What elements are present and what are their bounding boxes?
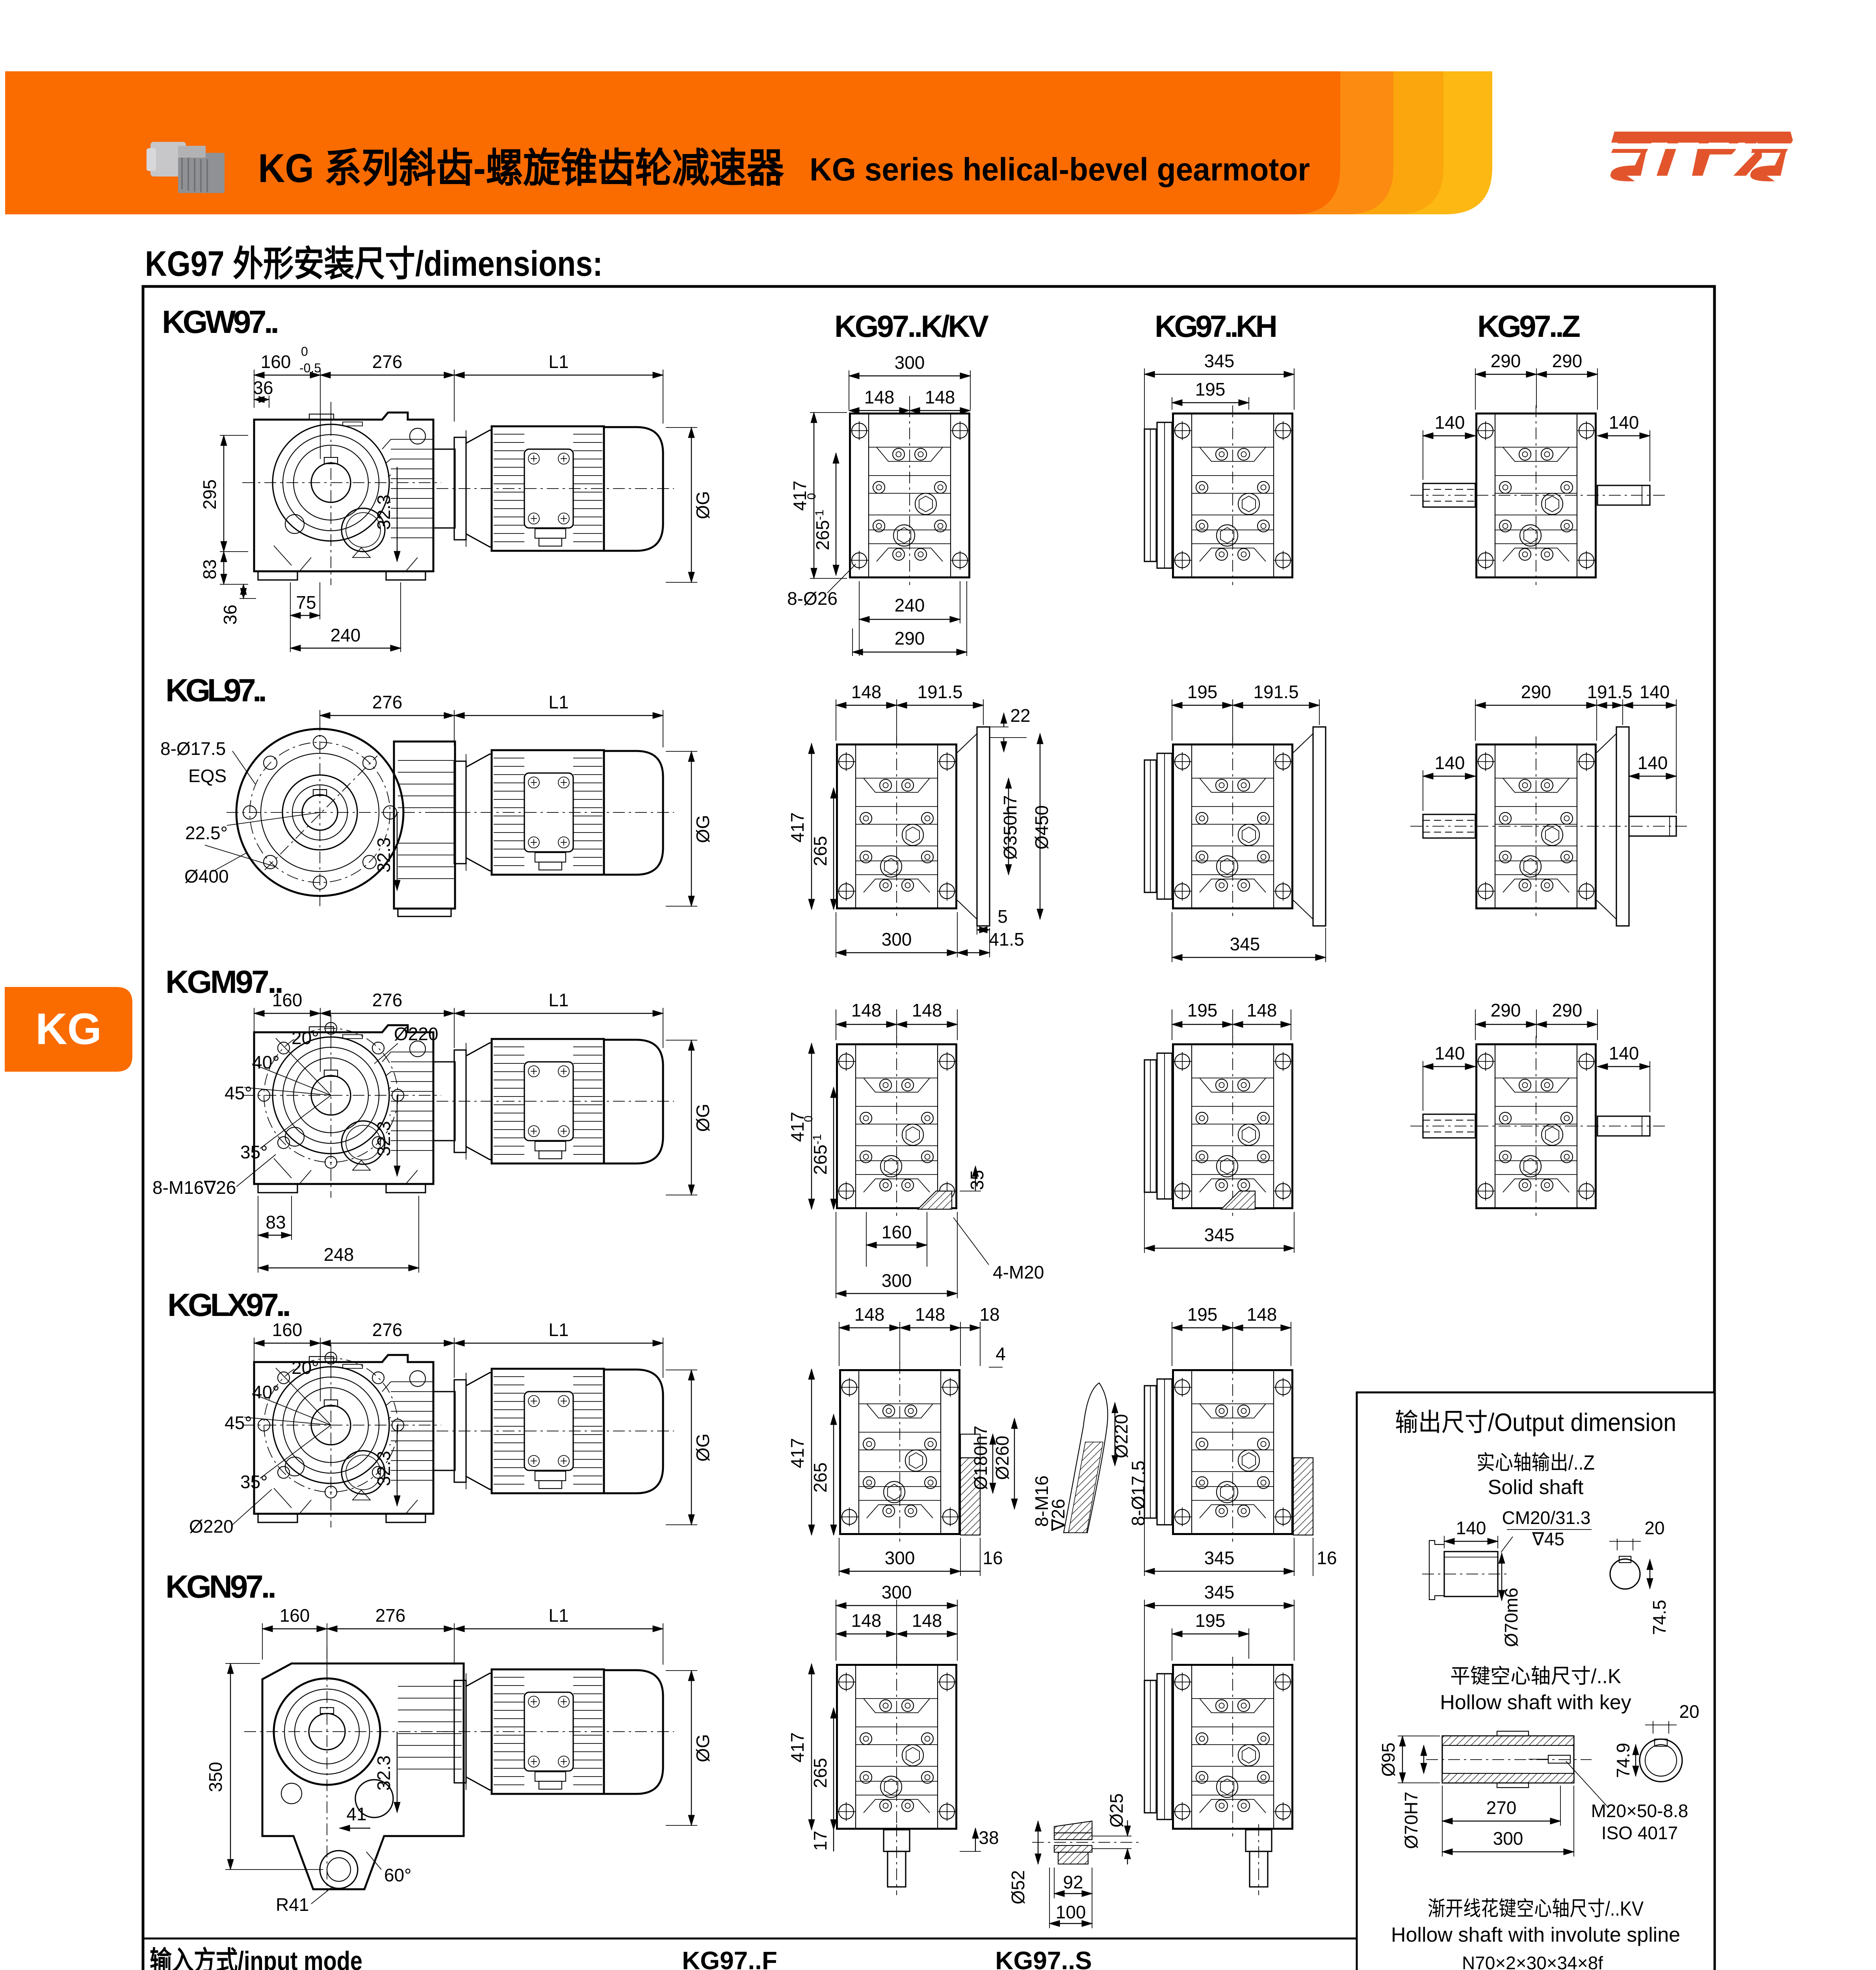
svg-text:140: 140 <box>1638 753 1668 773</box>
svg-text:4-M20: 4-M20 <box>993 1262 1044 1282</box>
svg-text:345: 345 <box>1204 1548 1235 1568</box>
svg-text:148: 148 <box>1247 1304 1277 1325</box>
svg-text:191.5: 191.5 <box>917 682 962 702</box>
svg-text:ØG: ØG <box>693 815 713 843</box>
svg-text:L1: L1 <box>548 1320 568 1340</box>
svg-text:140: 140 <box>1640 682 1670 702</box>
svg-text:KGW97..: KGW97.. <box>162 304 279 340</box>
svg-text:∇45: ∇45 <box>1532 1529 1564 1549</box>
svg-text:35°: 35° <box>240 1472 268 1492</box>
svg-text:Hollow shaft with involute spl: Hollow shaft with involute spline <box>1391 1924 1680 1946</box>
svg-text:36: 36 <box>220 604 240 624</box>
svg-text:KG series helical-bevel gearmo: KG series helical-bevel gearmotor <box>810 152 1310 188</box>
svg-text:16: 16 <box>1317 1548 1337 1568</box>
svg-text:输入方式/input mode: 输入方式/input mode <box>150 1946 362 1970</box>
svg-text:300: 300 <box>882 1270 912 1291</box>
svg-text:276: 276 <box>375 1605 406 1626</box>
svg-text:4: 4 <box>996 1344 1006 1364</box>
svg-text:8-M16∇26: 8-M16∇26 <box>152 1177 236 1198</box>
svg-text:Ø70m6: Ø70m6 <box>1501 1588 1521 1647</box>
svg-text:N70×2×30×34×8f: N70×2×30×34×8f <box>1462 1953 1603 1970</box>
svg-text:276: 276 <box>372 990 403 1010</box>
svg-text:195: 195 <box>1187 1000 1218 1020</box>
svg-text:290: 290 <box>1552 1000 1583 1020</box>
svg-text:35: 35 <box>967 1170 987 1190</box>
svg-text:Ø52: Ø52 <box>1008 1870 1028 1905</box>
svg-text:KGM97..: KGM97.. <box>165 964 284 1000</box>
svg-text:300: 300 <box>885 1548 915 1568</box>
svg-text:KG97..S: KG97..S <box>995 1946 1092 1970</box>
svg-text:148: 148 <box>851 1610 882 1631</box>
svg-text:Ø260: Ø260 <box>992 1436 1012 1480</box>
svg-text:32.3: 32.3 <box>373 837 394 873</box>
svg-text:290: 290 <box>895 628 925 649</box>
svg-text:KGN97..: KGN97.. <box>165 1569 277 1605</box>
svg-text:148: 148 <box>912 1000 942 1020</box>
svg-text:Ø350h7: Ø350h7 <box>1000 795 1020 860</box>
svg-text:KG 系列斜齿-螺旋锥齿轮减速器: KG 系列斜齿-螺旋锥齿轮减速器 <box>258 146 784 191</box>
svg-text:Ø220: Ø220 <box>1111 1414 1131 1459</box>
svg-text:92: 92 <box>1063 1872 1083 1892</box>
svg-text:160: 160 <box>272 1320 303 1340</box>
svg-text:276: 276 <box>372 1320 403 1340</box>
svg-text:Ø450: Ø450 <box>1031 805 1052 850</box>
svg-text:L1: L1 <box>548 692 568 712</box>
svg-text:300: 300 <box>895 352 925 373</box>
svg-text:L1: L1 <box>548 1605 568 1626</box>
svg-text:74.9: 74.9 <box>1613 1743 1633 1778</box>
svg-text:270: 270 <box>1486 1797 1517 1818</box>
svg-text:60°: 60° <box>384 1865 412 1885</box>
svg-text:L1: L1 <box>548 990 568 1010</box>
svg-text:KG: KG <box>35 1004 102 1054</box>
svg-text:41.5: 41.5 <box>989 929 1024 950</box>
svg-text:160: 160 <box>272 990 303 1010</box>
svg-text:ØG: ØG <box>693 1433 713 1462</box>
svg-text:265: 265 <box>810 1463 830 1493</box>
svg-text:-0.5: -0.5 <box>299 361 321 375</box>
svg-text:248: 248 <box>324 1244 354 1265</box>
svg-text:18: 18 <box>979 1304 999 1325</box>
svg-text:0: 0 <box>802 1115 815 1122</box>
svg-text:417: 417 <box>787 812 808 843</box>
svg-text:148: 148 <box>851 682 882 702</box>
svg-text:195: 195 <box>1195 1610 1226 1631</box>
svg-text:22: 22 <box>1010 705 1030 726</box>
svg-text:KG97..Z: KG97..Z <box>1477 309 1581 344</box>
svg-text:Ø95: Ø95 <box>1378 1743 1399 1777</box>
svg-text:20°: 20° <box>292 1028 319 1048</box>
svg-text:45°: 45° <box>225 1412 252 1433</box>
svg-text:300: 300 <box>882 1582 912 1602</box>
svg-text:Hollow shaft with key: Hollow shaft with key <box>1440 1691 1631 1714</box>
svg-text:100: 100 <box>1056 1902 1086 1922</box>
svg-text:R41: R41 <box>276 1894 309 1915</box>
svg-text:350: 350 <box>205 1762 226 1792</box>
svg-text:KG97..F: KG97..F <box>682 1946 777 1970</box>
svg-text:Ø220: Ø220 <box>189 1516 234 1537</box>
svg-text:417: 417 <box>787 1438 808 1468</box>
svg-text:20°: 20° <box>292 1357 319 1378</box>
svg-text:148: 148 <box>1247 1000 1277 1020</box>
svg-text:ISO 4017: ISO 4017 <box>1601 1823 1678 1843</box>
svg-text:CM20/31.3: CM20/31.3 <box>1502 1507 1590 1528</box>
svg-text:290: 290 <box>1552 351 1583 371</box>
svg-text:160: 160 <box>280 1605 310 1626</box>
svg-text:Ø70H7: Ø70H7 <box>1401 1792 1421 1849</box>
svg-text:8-Ø17.5: 8-Ø17.5 <box>160 738 226 759</box>
svg-text:41: 41 <box>346 1804 366 1824</box>
svg-text:276: 276 <box>372 692 403 712</box>
svg-text:KGL97..: KGL97.. <box>165 673 267 708</box>
svg-text:ØG: ØG <box>693 1104 713 1132</box>
svg-text:36: 36 <box>253 377 273 398</box>
svg-text:32.3: 32.3 <box>373 1451 394 1486</box>
svg-text:276: 276 <box>372 351 403 372</box>
svg-text:240: 240 <box>895 595 925 615</box>
svg-text:417: 417 <box>787 1732 808 1763</box>
svg-text:38: 38 <box>979 1827 999 1848</box>
svg-text:32.3: 32.3 <box>373 494 394 530</box>
svg-text:22.5°: 22.5° <box>185 823 228 843</box>
svg-text:渐开线花键空心轴尺寸/..KV: 渐开线花键空心轴尺寸/..KV <box>1428 1898 1644 1920</box>
svg-text:290: 290 <box>1491 351 1521 371</box>
svg-text:140: 140 <box>1435 1043 1465 1063</box>
svg-text:EQS: EQS <box>188 766 227 786</box>
svg-text:300: 300 <box>1493 1828 1523 1849</box>
svg-text:345: 345 <box>1204 351 1235 371</box>
svg-text:265: 265 <box>810 1758 830 1788</box>
svg-text:160: 160 <box>261 351 291 372</box>
svg-text:345: 345 <box>1204 1582 1235 1602</box>
svg-text:148: 148 <box>851 1000 882 1020</box>
svg-text:20: 20 <box>1679 1701 1699 1722</box>
svg-text:输出尺寸/Output dimension: 输出尺寸/Output dimension <box>1395 1408 1676 1437</box>
svg-text:Solid shaft: Solid shaft <box>1488 1476 1584 1499</box>
svg-text:17: 17 <box>810 1831 830 1851</box>
svg-text:0: 0 <box>805 493 818 500</box>
svg-text:8-Ø17.5: 8-Ø17.5 <box>1128 1461 1148 1526</box>
svg-text:32.3: 32.3 <box>373 1121 394 1156</box>
svg-text:345: 345 <box>1230 934 1260 954</box>
svg-text:35°: 35° <box>240 1142 268 1162</box>
svg-text:ØG: ØG <box>693 491 713 519</box>
svg-text:L1: L1 <box>548 351 568 372</box>
svg-text:148: 148 <box>854 1304 885 1325</box>
svg-text:140: 140 <box>1609 412 1639 433</box>
svg-text:Ø400: Ø400 <box>184 866 229 886</box>
svg-text:195: 195 <box>1187 1304 1218 1325</box>
svg-text:140: 140 <box>1435 412 1465 433</box>
svg-text:KG97..K/KV: KG97..K/KV <box>834 309 989 344</box>
svg-text:KG97 外形安装尺寸/dimensions:: KG97 外形安装尺寸/dimensions: <box>145 244 603 284</box>
svg-text:345: 345 <box>1204 1225 1235 1245</box>
svg-text:∇26: ∇26 <box>1048 1499 1068 1531</box>
svg-text:265: 265 <box>810 836 830 866</box>
svg-text:295: 295 <box>199 479 220 510</box>
svg-text:KG97..KH: KG97..KH <box>1155 309 1278 344</box>
svg-text:148: 148 <box>925 387 955 407</box>
svg-text:75: 75 <box>296 592 316 613</box>
svg-text:148: 148 <box>915 1304 945 1325</box>
svg-text:140: 140 <box>1456 1518 1486 1538</box>
svg-text:M20×50-8.8: M20×50-8.8 <box>1591 1801 1688 1821</box>
svg-text:实心轴输出/..Z: 实心轴输出/..Z <box>1477 1451 1595 1474</box>
svg-text:148: 148 <box>864 387 895 407</box>
svg-text:160: 160 <box>882 1222 912 1242</box>
svg-text:32.3: 32.3 <box>373 1755 394 1791</box>
svg-text:8-Ø26: 8-Ø26 <box>787 588 838 609</box>
svg-text:0: 0 <box>301 344 308 359</box>
svg-text:74.5: 74.5 <box>1649 1600 1670 1635</box>
svg-text:148: 148 <box>912 1610 942 1631</box>
svg-text:191.5: 191.5 <box>1253 682 1298 702</box>
svg-text:290: 290 <box>1491 1000 1521 1020</box>
svg-text:16: 16 <box>983 1548 1003 1568</box>
svg-text:20: 20 <box>1644 1518 1664 1538</box>
svg-text:195: 195 <box>1187 682 1218 702</box>
svg-text:Ø220: Ø220 <box>394 1024 438 1044</box>
svg-text:5: 5 <box>997 906 1008 927</box>
svg-text:140: 140 <box>1435 753 1465 773</box>
svg-text:KGLX97..: KGLX97.. <box>167 1287 291 1323</box>
svg-text:45°: 45° <box>225 1083 252 1103</box>
svg-text:83: 83 <box>199 559 220 579</box>
svg-text:83: 83 <box>266 1212 286 1232</box>
svg-text:240: 240 <box>331 625 361 645</box>
svg-text:140: 140 <box>1609 1043 1639 1063</box>
svg-text:195: 195 <box>1195 379 1226 400</box>
svg-text:191.5: 191.5 <box>1587 682 1632 702</box>
svg-text:平键空心轴尺寸/..K: 平键空心轴尺寸/..K <box>1450 1665 1621 1688</box>
svg-text:Ø25: Ø25 <box>1106 1793 1127 1828</box>
svg-text:Ø180h7: Ø180h7 <box>970 1425 991 1490</box>
svg-text:300: 300 <box>882 929 912 950</box>
svg-text:290: 290 <box>1521 682 1551 702</box>
svg-text:ØG: ØG <box>693 1734 713 1762</box>
